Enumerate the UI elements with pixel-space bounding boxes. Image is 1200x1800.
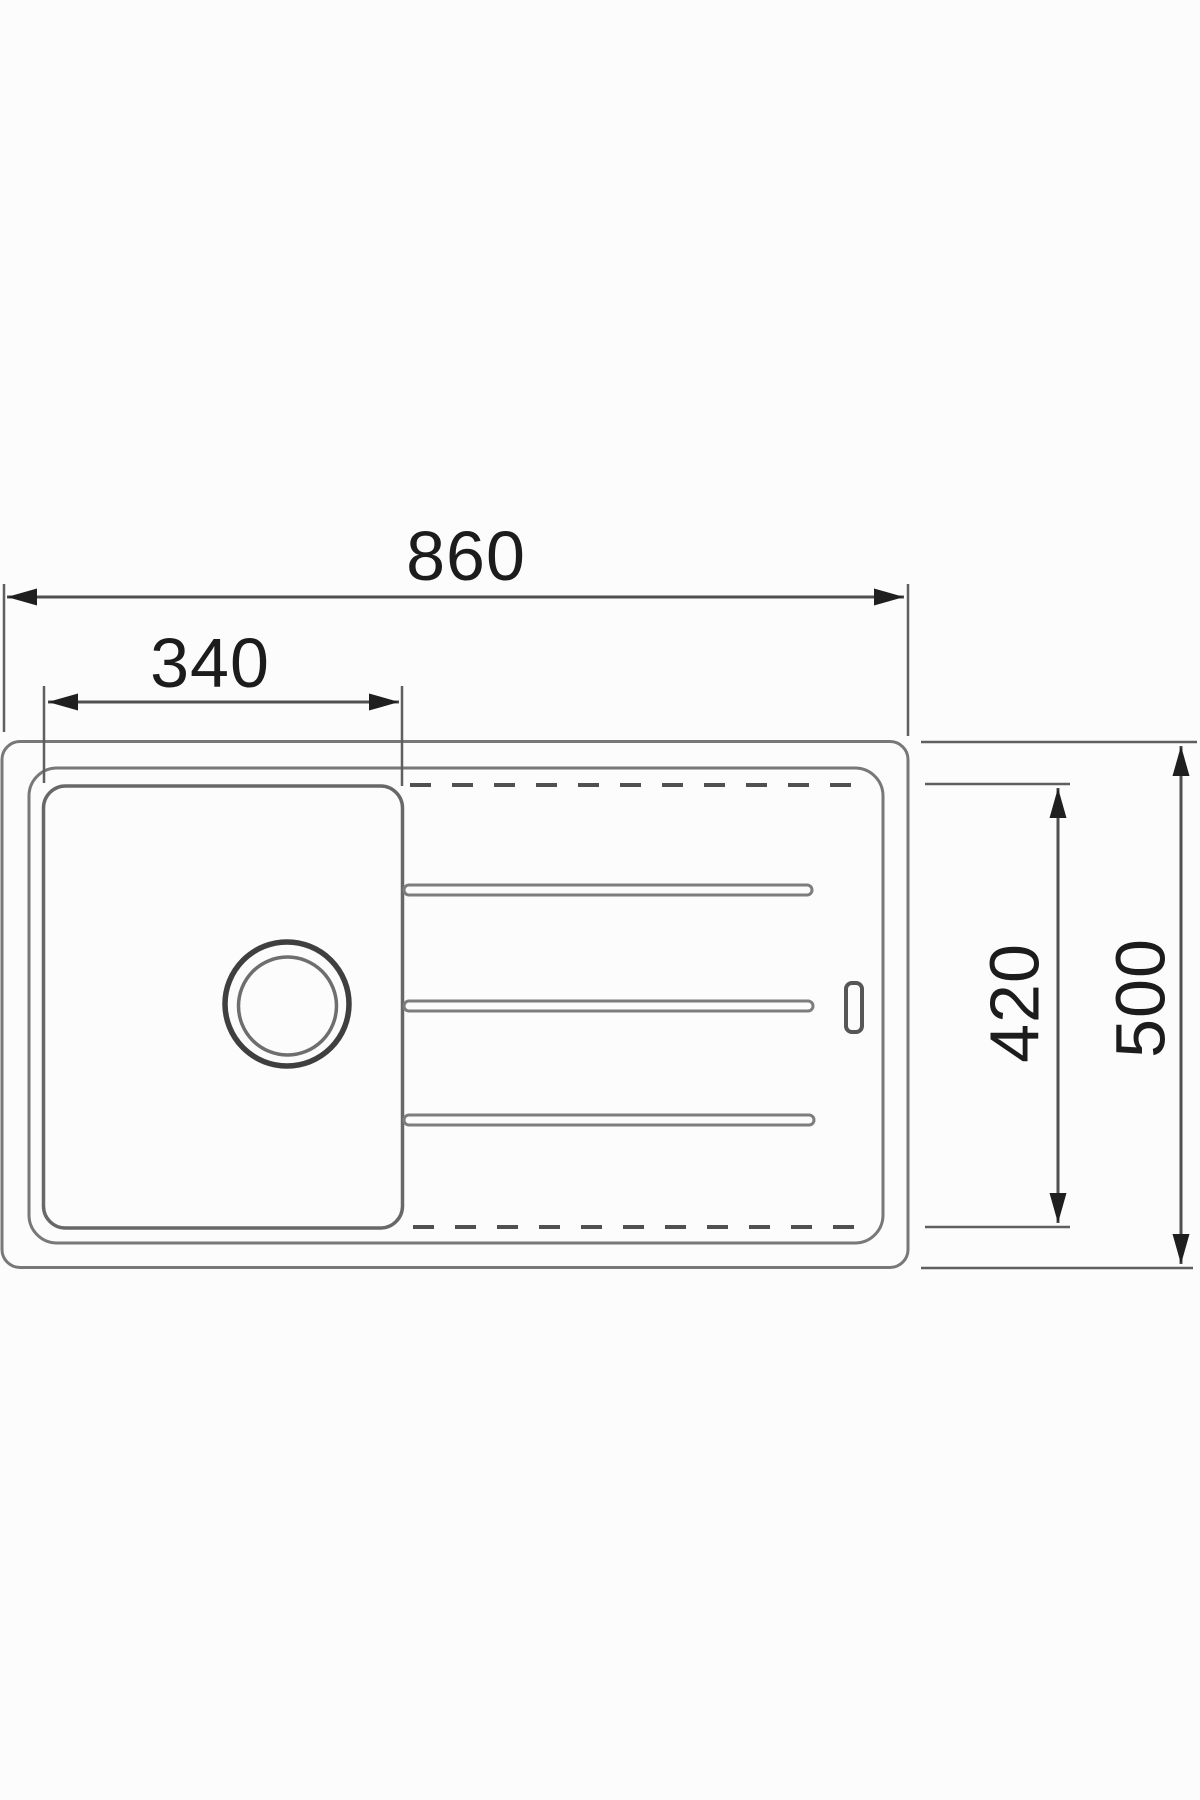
drain-outer-circle	[225, 942, 349, 1066]
drain-inner-circle	[239, 957, 337, 1055]
drawing-canvas: 860 340 420 500	[0, 0, 1200, 1800]
drainer-groove	[404, 1115, 814, 1125]
dim-340-label: 340	[150, 624, 270, 702]
dim-420-label: 420	[976, 943, 1054, 1063]
dim-860-label: 860	[406, 517, 526, 595]
drainer-groove	[404, 1001, 813, 1011]
sink-technical-drawing: 860 340 420 500	[0, 0, 1200, 1800]
overflow-slot	[846, 983, 862, 1032]
dim-500-label: 500	[1102, 938, 1180, 1058]
drainer-groove	[404, 885, 812, 895]
